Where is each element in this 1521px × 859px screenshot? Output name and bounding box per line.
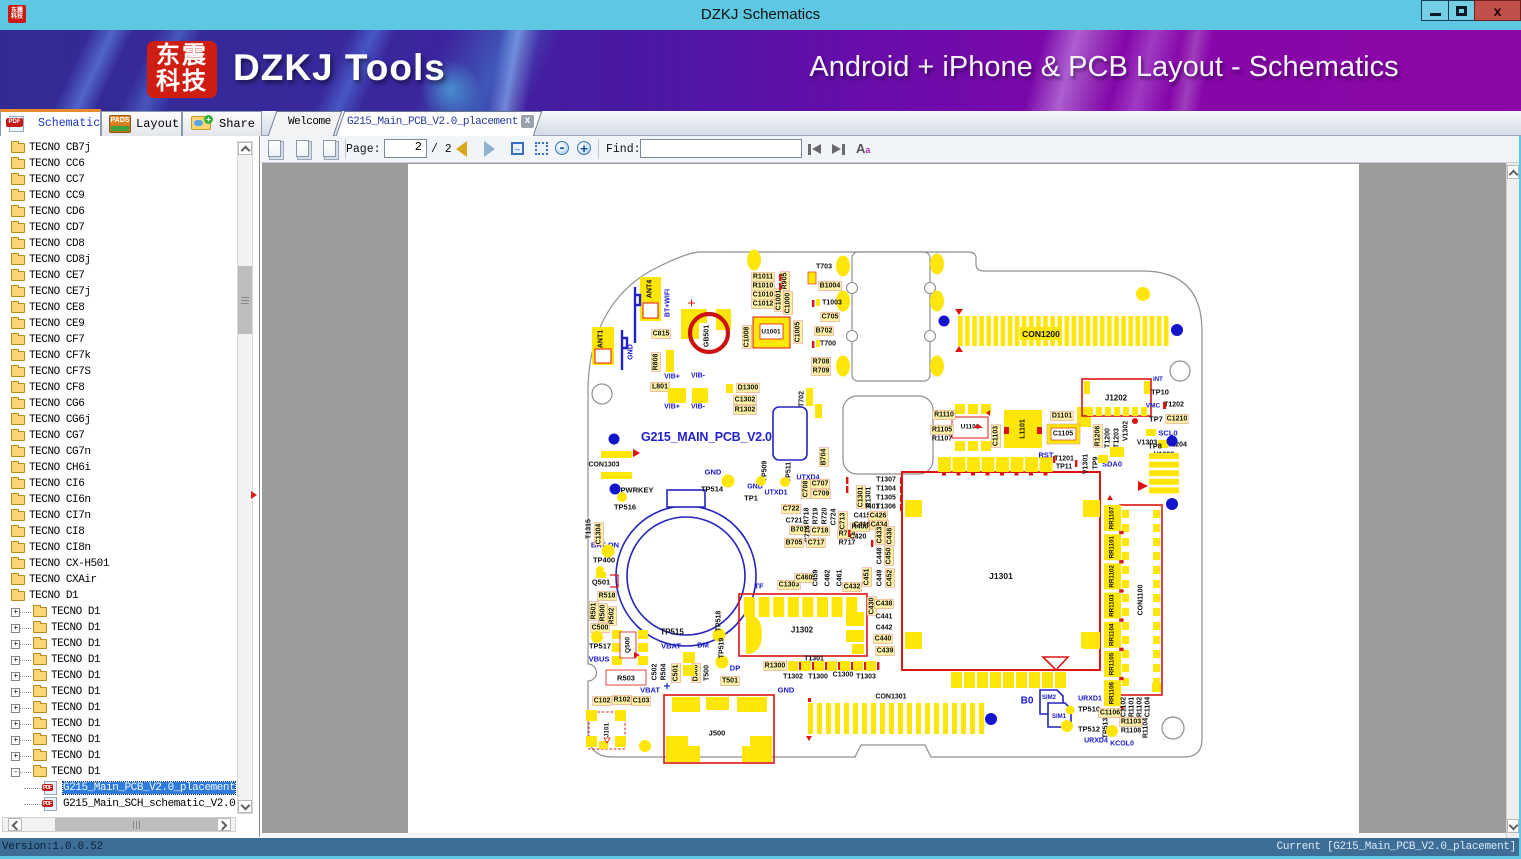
svg-text:R501: R501 [591,603,598,620]
svg-text:B702: B702 [816,328,833,335]
svg-text:C433: C433 [877,527,884,544]
svg-text:VIB-: VIB- [691,373,706,380]
svg-text:R1301: R1301 [866,487,873,508]
svg-text:T1003: T1003 [822,300,842,307]
svg-text:T500: T500 [704,665,711,681]
svg-text:C1302: C1302 [735,397,756,404]
svg-text:URXD4: URXD4 [1084,738,1108,745]
svg-text:TP8: TP8 [1148,442,1162,451]
svg-text:J500: J500 [709,729,726,738]
svg-text:SIM1: SIM1 [1052,714,1067,720]
svg-text:GND: GND [705,468,722,477]
svg-text:GB501: GB501 [704,325,711,347]
svg-text:R1108: R1108 [1121,728,1141,735]
svg-text:U1001: U1001 [761,329,781,336]
svg-text:GND: GND [778,686,795,695]
svg-text:C1104: C1104 [1145,697,1152,717]
svg-text:C450: C450 [886,548,893,565]
svg-text:C1000: C1000 [785,293,792,314]
svg-text:C436: C436 [887,528,894,545]
svg-text:C713: C713 [840,513,847,530]
svg-text:R502: R502 [609,608,616,625]
svg-text:C501: C501 [673,665,680,682]
svg-text:VIB+: VIB+ [664,374,680,381]
svg-text:J1302: J1302 [791,626,814,635]
svg-text:R708: R708 [813,359,830,366]
svg-text:C442: C442 [876,625,893,632]
svg-text:C103: C103 [633,698,650,705]
svg-text:C724: C724 [831,509,838,526]
svg-text:T1202: T1202 [1164,402,1184,409]
svg-text:TP11: TP11 [1056,464,1072,471]
svg-text:J101: J101 [604,722,611,737]
svg-text:R1104: R1104 [1143,718,1150,738]
svg-text:L801: L801 [652,384,668,391]
svg-text:T702: T702 [799,391,806,407]
svg-text:R1101: R1101 [1129,697,1136,717]
svg-text:T1315: T1315 [586,519,593,539]
svg-text:C460: C460 [796,575,813,582]
svg-text:KCOL0: KCOL0 [1110,741,1134,748]
svg-text:C102: C102 [594,698,611,705]
svg-text:C1012: C1012 [753,301,774,308]
svg-text:T1304: T1304 [876,486,896,493]
svg-text:T1200: T1200 [1105,428,1112,448]
svg-text:ANT4: ANT4 [647,280,654,298]
svg-text:C439: C439 [877,648,894,655]
svg-text:C1102: C1102 [1121,697,1128,717]
svg-text:C718: C718 [812,528,829,535]
svg-text:R504: R504 [661,664,668,681]
svg-text:R1302: R1302 [735,407,756,414]
svg-text:TP400: TP400 [593,556,615,565]
svg-text:R1206: R1206 [1095,426,1102,447]
svg-text:C502: C502 [652,664,659,681]
svg-text:C815: C815 [653,331,670,338]
svg-text:TP7: TP7 [1149,415,1163,424]
svg-text:R808: R808 [653,354,660,371]
svg-text:R717: R717 [839,540,856,547]
svg-text:T1306: T1306 [876,504,896,511]
svg-text:C500: C500 [592,625,609,632]
svg-text:C1301: C1301 [858,487,865,508]
svg-text:R905: R905 [782,273,789,290]
svg-text:CON1100: CON1100 [1138,585,1145,616]
svg-text:TP10: TP10 [1151,388,1169,397]
svg-text:PWRKEY: PWRKEY [621,486,654,495]
svg-text:VIB+: VIB+ [664,404,680,411]
svg-text:T1302: T1302 [783,674,803,681]
svg-text:C459: C459 [813,570,820,587]
svg-text:T1307: T1307 [876,477,896,484]
svg-text:RR1106: RR1106 [1109,681,1116,704]
svg-text:T700: T700 [820,341,836,348]
svg-text:C708: C708 [803,481,810,498]
svg-text:VBAT: VBAT [640,686,660,695]
svg-text:SIM2: SIM2 [1042,695,1057,701]
svg-text:TF: TF [754,582,764,591]
svg-text:DP: DP [730,664,740,673]
svg-text:INT: INT [1153,377,1163,383]
svg-text:BT+WIFI: BT+WIFI [665,289,672,317]
svg-text:C721: C721 [786,518,803,525]
svg-text:R719: R719 [813,508,820,525]
svg-text:C438: C438 [876,601,893,608]
svg-text:C415: C415 [854,513,871,520]
svg-text:G215_MAIN_PCB_V2.0: G215_MAIN_PCB_V2.0 [641,430,772,444]
svg-text:C722: C722 [783,506,800,513]
svg-text:VBUS: VBUS [589,655,610,664]
svg-text:B0: B0 [1021,696,1034,707]
svg-text:RR1102: RR1102 [1109,565,1116,588]
svg-text:RR1104: RR1104 [1109,623,1116,646]
svg-text:V1302: V1302 [1123,421,1130,441]
svg-text:C448: C448 [877,548,884,565]
svg-text:Q501: Q501 [592,578,610,587]
svg-text:TP518: TP518 [716,611,723,632]
svg-text:RST: RST [1039,451,1054,460]
svg-text:TP515: TP515 [660,628,684,637]
svg-text:TP516: TP516 [614,503,636,512]
svg-text:TP519: TP519 [719,638,726,659]
svg-text:R1300: R1300 [765,663,786,670]
svg-text:T501: T501 [722,678,738,685]
svg-text:J1301: J1301 [989,571,1013,581]
svg-text:VIB-: VIB- [691,404,706,411]
svg-text:C432: C432 [844,584,861,591]
svg-text:R102: R102 [614,697,631,704]
svg-text:C1105: C1105 [1053,431,1073,438]
svg-text:SCL0: SCL0 [1158,429,1177,438]
svg-text:DM: DM [697,641,709,650]
svg-text:CON1303: CON1303 [588,462,619,469]
svg-text:C1010: C1010 [753,292,774,299]
svg-text:C426: C426 [870,513,887,520]
svg-text:B1004: B1004 [820,283,841,290]
svg-text:RR1103: RR1103 [1109,594,1116,617]
svg-text:Q500: Q500 [625,637,632,653]
svg-text:T1303: T1303 [856,674,876,681]
svg-text:CON1200: CON1200 [1022,329,1060,339]
svg-text:R503: R503 [617,674,635,683]
svg-text:TP514: TP514 [701,485,724,494]
svg-text:C451: C451 [864,569,871,586]
svg-text:RR1105: RR1105 [1109,652,1116,675]
svg-text:C440: C440 [875,636,892,643]
svg-text:GND: GND [628,344,635,360]
svg-text:CON1301: CON1301 [875,694,906,701]
svg-text:L1101: L1101 [1020,419,1027,439]
svg-text:C707: C707 [812,481,829,488]
svg-text:R1102: R1102 [1137,697,1144,717]
svg-text:VMC: VMC [1146,403,1161,410]
svg-text:J1202: J1202 [1105,394,1128,403]
svg-text:T703: T703 [816,264,832,271]
svg-text:C449: C449 [877,570,884,587]
svg-text:R1011: R1011 [753,274,773,281]
svg-text:B704: B704 [821,449,828,466]
svg-text:URXD1: URXD1 [1078,696,1102,703]
svg-text:RR1101: RR1101 [1109,535,1116,558]
svg-text:TP517: TP517 [589,642,611,651]
svg-text:C705: C705 [822,314,839,321]
svg-text:C1001: C1001 [776,290,783,311]
svg-text:D1300: D1300 [738,385,759,392]
svg-text:C462: C462 [825,570,832,587]
svg-text:V1301: V1301 [1083,454,1090,474]
svg-text:C441: C441 [876,614,893,621]
svg-text:R1103: R1103 [1121,719,1141,726]
svg-text:T1201: T1201 [1054,456,1074,463]
svg-text:VBAT: VBAT [661,642,681,651]
svg-text:TP512: TP512 [1078,725,1100,734]
svg-text:C709: C709 [813,491,830,498]
svg-text:C1103: C1103 [993,426,1000,446]
svg-text:C420: C420 [850,534,867,541]
svg-text:R500: R500 [600,605,607,622]
svg-text:C1008: C1008 [744,327,751,348]
svg-text:ANT1: ANT1 [598,330,605,348]
svg-text:C1106: C1106 [1100,710,1120,717]
svg-text:C1005: C1005 [795,322,802,343]
svg-text:UTXD1: UTXD1 [765,490,788,497]
svg-text:C1304: C1304 [596,524,603,545]
svg-text:C452: C452 [887,570,894,587]
svg-text:R1107: R1107 [932,436,952,443]
svg-text:TP1: TP1 [744,494,758,503]
svg-text:C416: C416 [854,522,871,529]
svg-text:C1300: C1300 [833,672,854,679]
svg-text:C717: C717 [808,540,825,547]
svg-text:R1010: R1010 [753,283,774,290]
svg-text:T1305: T1305 [876,495,896,502]
svg-text:D1101: D1101 [1052,413,1072,420]
svg-text:T1203: T1203 [1114,428,1121,448]
svg-text:C1210: C1210 [1167,416,1188,423]
svg-text:R1110: R1110 [934,412,954,419]
svg-text:TP510: TP510 [1078,705,1100,714]
svg-text:RR1107: RR1107 [1109,506,1116,529]
svg-text:B705: B705 [786,540,803,547]
svg-text:T1300: T1300 [808,674,828,681]
svg-text:R518: R518 [599,593,616,600]
svg-text:R720: R720 [822,508,829,525]
svg-text:R718: R718 [804,508,811,525]
svg-text:R709: R709 [813,368,830,375]
svg-text:R1105: R1105 [932,427,952,434]
